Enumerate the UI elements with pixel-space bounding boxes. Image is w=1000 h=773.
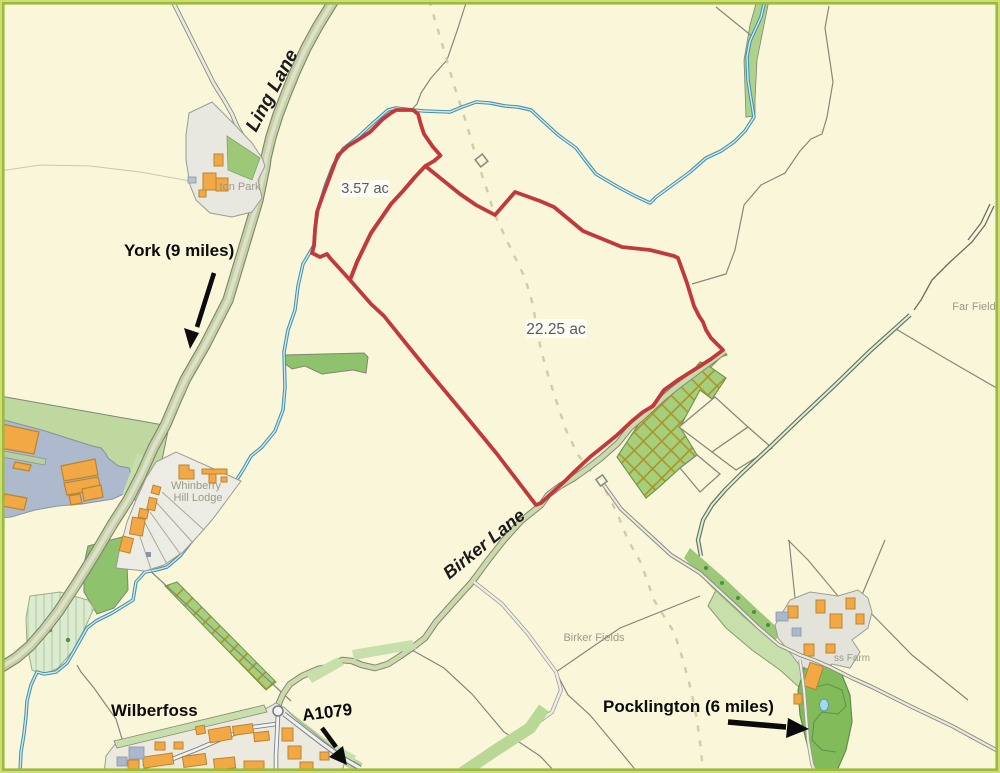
svg-text:Wilberfoss: Wilberfoss <box>111 701 198 720</box>
svg-text:Hill Lodge: Hill Lodge <box>174 492 223 504</box>
svg-text:3.57 ac: 3.57 ac <box>341 181 389 197</box>
svg-text:ton Park: ton Park <box>220 181 261 193</box>
svg-text:Pocklington (6 miles): Pocklington (6 miles) <box>603 697 774 716</box>
svg-text:Far Field: Far Field <box>952 301 995 313</box>
svg-text:Whinberry: Whinberry <box>171 480 222 492</box>
svg-text:ss Farm: ss Farm <box>834 653 870 664</box>
svg-text:22.25 ac: 22.25 ac <box>526 321 586 338</box>
svg-text:York (9 miles): York (9 miles) <box>124 241 234 260</box>
svg-text:Birker Fields: Birker Fields <box>563 632 625 644</box>
